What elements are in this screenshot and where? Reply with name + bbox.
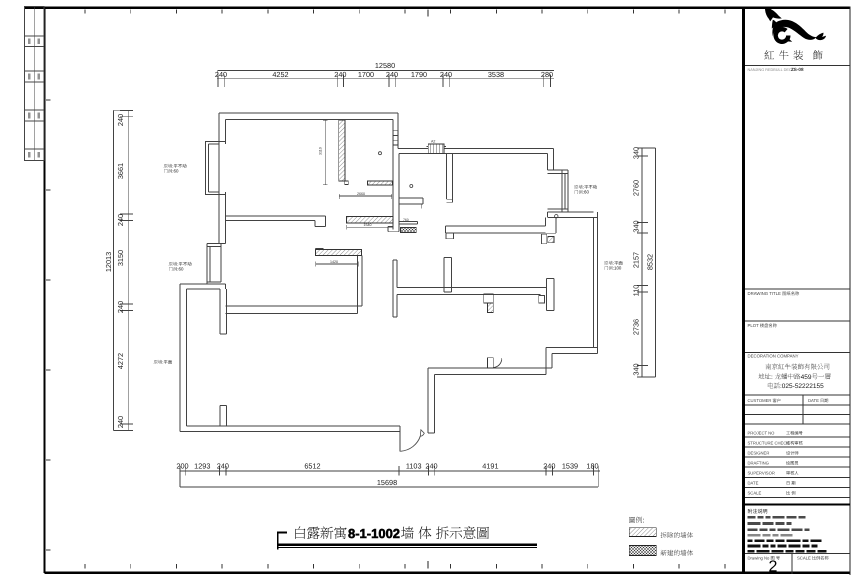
svg-text:1103: 1103 xyxy=(406,462,422,471)
svg-text:240: 240 xyxy=(116,114,125,126)
svg-text::60: :60 xyxy=(583,190,590,195)
svg-text:15698: 15698 xyxy=(377,478,397,487)
svg-text:ZS-08: ZS-08 xyxy=(791,67,804,72)
svg-text:1293: 1293 xyxy=(194,462,210,471)
svg-text:6512: 6512 xyxy=(304,462,320,471)
svg-text:设计师: 设计师 xyxy=(786,451,799,456)
svg-text::60: :60 xyxy=(172,169,179,174)
svg-text:PROJECT NO: PROJECT NO xyxy=(748,431,776,436)
svg-text:12580: 12580 xyxy=(375,61,395,70)
svg-text:结构审核: 结构审核 xyxy=(786,441,804,446)
svg-text:200: 200 xyxy=(176,462,188,471)
svg-text:240: 240 xyxy=(334,70,346,79)
svg-text:240: 240 xyxy=(217,462,229,471)
svg-text:4272: 4272 xyxy=(116,353,125,369)
svg-text:1420: 1420 xyxy=(330,260,338,264)
svg-text:1539: 1539 xyxy=(562,462,578,471)
svg-text::: : xyxy=(771,374,773,381)
svg-text:1540: 1540 xyxy=(364,223,372,227)
svg-text::025-52222155: :025-52222155 xyxy=(780,383,824,390)
svg-text:240: 240 xyxy=(543,462,555,471)
svg-text::平面: :平面 xyxy=(162,360,173,365)
svg-text:DECORATION COMPANY: DECORATION COMPANY xyxy=(748,354,799,359)
svg-text:3661: 3661 xyxy=(116,163,125,179)
svg-text::60: :60 xyxy=(177,267,184,272)
svg-text:4252: 4252 xyxy=(272,70,288,79)
svg-text:4191: 4191 xyxy=(482,462,498,471)
svg-text:绘图员: 绘图员 xyxy=(786,461,799,466)
svg-text:工程编号: 工程编号 xyxy=(786,431,803,436)
svg-text:DATE 日期: DATE 日期 xyxy=(808,398,828,403)
svg-text:SUPERVISOR: SUPERVISOR xyxy=(748,471,775,476)
svg-text:2736: 2736 xyxy=(632,319,641,335)
svg-text:340: 340 xyxy=(632,147,641,159)
svg-text:12013: 12013 xyxy=(104,252,113,272)
svg-text:DATE: DATE xyxy=(748,481,759,486)
svg-text:2660: 2660 xyxy=(357,192,365,196)
svg-text:附注说明: 附注说明 xyxy=(748,508,768,515)
svg-text:CUSTOMER 客户: CUSTOMER 客户 xyxy=(748,398,781,403)
svg-text:340: 340 xyxy=(632,220,641,232)
svg-text:459: 459 xyxy=(801,374,812,381)
svg-text:SCALE: SCALE xyxy=(748,491,762,496)
svg-text:2760: 2760 xyxy=(632,180,641,196)
svg-text:180: 180 xyxy=(586,462,598,471)
svg-text:3150: 3150 xyxy=(116,250,125,266)
svg-text:NANJING REDBULL DECO: NANJING REDBULL DECO xyxy=(748,68,795,72)
svg-text:240: 240 xyxy=(440,70,452,79)
svg-text:SCALE 比例名称: SCALE 比例名称 xyxy=(797,556,829,561)
svg-text:760: 760 xyxy=(403,218,409,222)
svg-text:240: 240 xyxy=(425,462,437,471)
svg-text:3110: 3110 xyxy=(319,147,323,155)
svg-text:1700: 1700 xyxy=(358,70,374,79)
svg-text:3538: 3538 xyxy=(488,70,504,79)
svg-text:比 例: 比 例 xyxy=(786,491,796,496)
svg-text:日 期: 日 期 xyxy=(786,481,796,486)
svg-text:240: 240 xyxy=(386,70,398,79)
svg-text:STRUCTURE CHECK: STRUCTURE CHECK xyxy=(748,441,790,446)
svg-text:PLOT 楼盘名称: PLOT 楼盘名称 xyxy=(748,323,778,328)
svg-text:2: 2 xyxy=(769,559,778,576)
svg-text:280: 280 xyxy=(541,70,553,79)
svg-text::100: :100 xyxy=(613,266,622,271)
svg-text:2157: 2157 xyxy=(632,252,641,268)
svg-text:审核人: 审核人 xyxy=(786,471,799,476)
svg-text:8532: 8532 xyxy=(646,254,655,270)
svg-text:8-1-1002: 8-1-1002 xyxy=(348,526,400,541)
svg-text:DESIGNER: DESIGNER xyxy=(748,451,770,456)
svg-text::: : xyxy=(643,518,645,525)
svg-text:A2: A2 xyxy=(431,140,435,144)
svg-text:240: 240 xyxy=(116,301,125,313)
svg-text:240: 240 xyxy=(215,70,227,79)
svg-text:240: 240 xyxy=(116,214,125,226)
svg-text:1790: 1790 xyxy=(411,70,427,79)
svg-text:340: 340 xyxy=(632,363,641,375)
svg-text:240: 240 xyxy=(116,416,125,428)
svg-text:DRAWING TITLE 图纸名称: DRAWING TITLE 图纸名称 xyxy=(748,291,801,296)
svg-text:110: 110 xyxy=(632,285,641,297)
svg-text:DRAFTING: DRAFTING xyxy=(748,461,769,466)
